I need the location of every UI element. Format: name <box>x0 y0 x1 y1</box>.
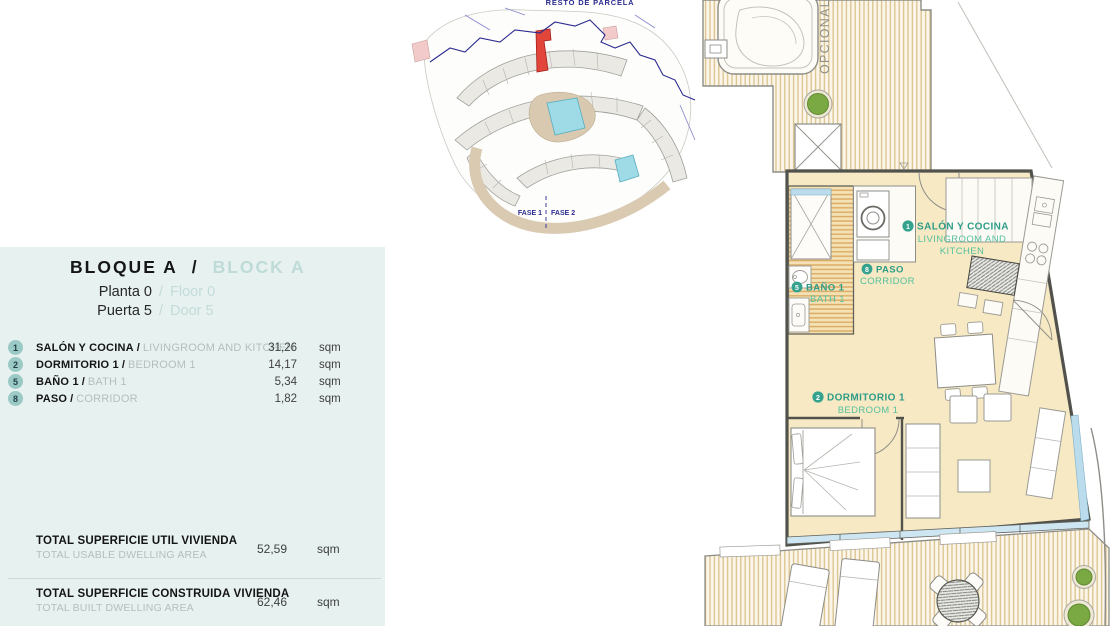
room-label-en: KITCHEN <box>940 246 985 257</box>
door-label-en: Door 5 <box>170 303 214 319</box>
pink-unit <box>603 26 618 40</box>
room-separator: / <box>82 376 85 388</box>
floor-separator: / <box>159 284 163 300</box>
total-unit: sqm <box>317 542 341 556</box>
door-row: Puerta 5 / Door 5 <box>0 303 214 319</box>
terrace-plant <box>804 90 832 118</box>
room-label-en: BEDROOM 1 <box>838 405 899 416</box>
room-label-es: DORMITORIO 1 <box>827 393 905 404</box>
room-separator: / <box>70 393 73 405</box>
room-badge: 5 <box>8 374 23 389</box>
unit-info-panel: BLOQUE A / BLOCK A Planta 0 / Floor 0 Pu… <box>0 247 385 626</box>
page: BLOQUE A / BLOCK A Planta 0 / Floor 0 Pu… <box>0 0 1110 626</box>
room-name-en: BEDROOM 1 <box>128 359 196 371</box>
room-area-value: 14,17 <box>237 359 297 371</box>
room-list: 1 SALÓN Y COCINA / LIVINGROOM AND KITCHE… <box>0 339 385 407</box>
totals-divider <box>8 578 381 579</box>
room-area-value: 5,34 <box>237 376 297 388</box>
pergola-skylight <box>795 124 841 170</box>
room-label-en: LIVINGROOM AND <box>918 234 1006 245</box>
total-value: 62,46 <box>227 595 287 609</box>
total-unit: sqm <box>317 595 341 609</box>
room-area-value: 31,26 <box>237 342 297 354</box>
room-number: 5 <box>795 285 799 292</box>
terrace-plant <box>1073 566 1096 589</box>
room-area-unit: sqm <box>319 342 341 354</box>
sofa <box>906 424 940 518</box>
shower <box>791 189 831 259</box>
jacuzzi <box>718 0 818 74</box>
floor-plan-drawing: OPCIONAL <box>700 0 1110 626</box>
door-label-es: Puerta 5 <box>0 303 152 319</box>
room-number: 8 <box>865 267 869 274</box>
room-name-en: CORRIDOR <box>76 393 138 405</box>
room-label-en: BATH 1 <box>810 294 845 305</box>
site-plan-drawing: RESTO DE PARCELA FASE 1 FASE 2 <box>405 0 705 235</box>
door-separator: / <box>159 303 163 319</box>
room-label-es: BAÑO 1 <box>806 283 845 294</box>
total-value: 52,59 <box>227 542 287 556</box>
room-separator: / <box>137 342 140 354</box>
room-badge: 1 <box>8 340 23 355</box>
floor-label-en: Floor 0 <box>170 284 215 300</box>
room-name-es: BAÑO 1 <box>36 376 79 388</box>
resto-de-parcela-label: RESTO DE PARCELA <box>546 0 635 7</box>
lower-terrace-deck <box>705 529 1109 626</box>
neighbour-boundary-line <box>958 2 1052 168</box>
room-name-es: DORMITORIO 1 <box>36 359 119 371</box>
block-title-en: BLOCK A <box>213 257 306 278</box>
room-row-salon: 1 SALÓN Y COCINA / LIVINGROOM AND KITCHE… <box>0 339 385 356</box>
bed <box>791 428 875 516</box>
coffee-table <box>958 460 990 492</box>
room-badge: 2 <box>8 357 23 372</box>
floor-plan: OPCIONAL <box>700 0 1110 626</box>
room-area-unit: sqm <box>319 359 341 371</box>
room-row-bano: 5 BAÑO 1 / BATH 1 5,34 sqm <box>0 373 385 390</box>
total-usable-area: TOTAL SUPERFICIE UTIL VIVIENDA TOTAL USA… <box>0 535 385 561</box>
room-badge: 8 <box>8 391 23 406</box>
room-area-value: 1,82 <box>237 393 297 405</box>
opcional-label: OPCIONAL <box>818 0 832 74</box>
floor-row: Planta 0 / Floor 0 <box>0 284 215 300</box>
room-row-dormitorio: 2 DORMITORIO 1 / BEDROOM 1 14,17 sqm <box>0 356 385 373</box>
total-built-area: TOTAL SUPERFICIE CONSTRUIDA VIVIENDA TOT… <box>0 588 385 614</box>
phase-1-label: FASE 1 <box>518 210 542 217</box>
sun-lounger <box>834 558 880 626</box>
floor-label-es: Planta 0 <box>0 284 152 300</box>
room-label-en: CORRIDOR <box>860 276 915 287</box>
room-name-en: BATH 1 <box>88 376 127 388</box>
title-separator: / <box>192 257 199 278</box>
room-area-unit: sqm <box>319 376 341 388</box>
block-title-es: BLOQUE A <box>70 257 178 278</box>
room-separator: / <box>122 359 125 371</box>
pink-unit <box>412 40 430 62</box>
room-name-es: SALÓN Y COCINA <box>36 342 134 354</box>
room-area-unit: sqm <box>319 393 341 405</box>
site-plan: RESTO DE PARCELA FASE 1 FASE 2 <box>405 0 705 235</box>
room-label-es: SALÓN Y COCINA <box>917 220 1009 233</box>
room-label-es: PASO <box>876 265 904 276</box>
outdoor-fixture <box>705 40 727 58</box>
terrace-plant <box>1064 600 1094 626</box>
room-number: 2 <box>816 395 820 402</box>
room-name-es: PASO <box>36 393 67 405</box>
bathroom-sink <box>789 298 809 332</box>
room-row-paso: 8 PASO / CORRIDOR 1,82 sqm <box>0 390 385 407</box>
block-title: BLOQUE A / BLOCK A <box>70 257 306 278</box>
room-number: 1 <box>906 224 910 231</box>
phase-2-label: FASE 2 <box>551 210 575 217</box>
